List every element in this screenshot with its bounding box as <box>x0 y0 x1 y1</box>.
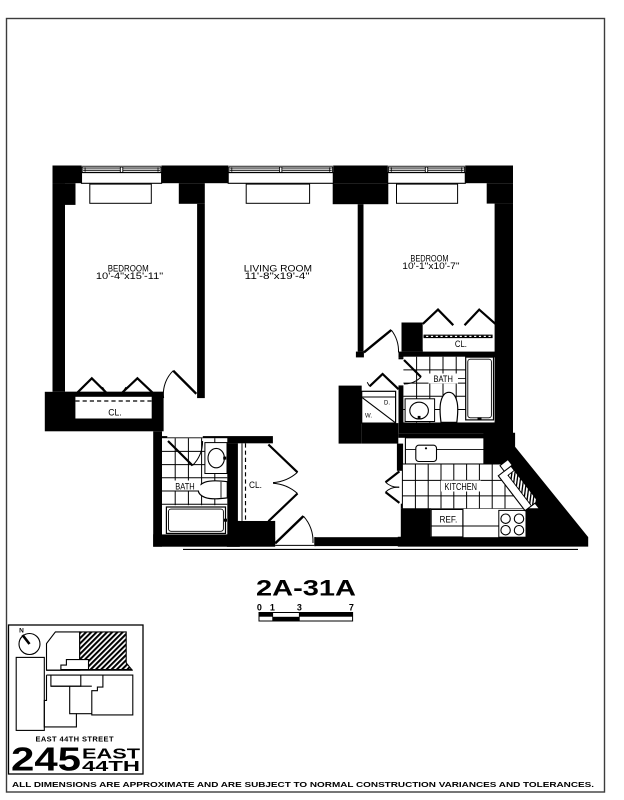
svg-text:7: 7 <box>349 603 354 613</box>
svg-text:CL.: CL. <box>455 339 467 350</box>
svg-text:CL.: CL. <box>108 407 121 418</box>
svg-text:N: N <box>19 628 24 635</box>
svg-text:ALL DIMENSIONS ARE APPROXIMATE: ALL DIMENSIONS ARE APPROXIMATE AND ARE S… <box>12 780 594 789</box>
svg-text:44TH: 44TH <box>82 759 140 775</box>
svg-text:10'-1"x10'-7": 10'-1"x10'-7" <box>402 261 459 271</box>
svg-text:10'-4"x15'-11": 10'-4"x15'-11" <box>96 271 163 281</box>
svg-text:2A-31A: 2A-31A <box>256 576 356 601</box>
svg-text:W.: W. <box>365 414 372 420</box>
svg-text:D.: D. <box>384 401 390 407</box>
svg-text:BATH: BATH <box>175 481 194 491</box>
svg-text:CL.: CL. <box>249 480 262 491</box>
svg-text:11'-8"x19'-4": 11'-8"x19'-4" <box>245 271 310 281</box>
svg-text:BATH: BATH <box>434 374 453 384</box>
svg-text:245: 245 <box>11 741 81 778</box>
svg-text:REF.: REF. <box>440 515 458 525</box>
svg-text:0: 0 <box>257 603 262 613</box>
svg-text:1: 1 <box>270 603 275 613</box>
svg-text:KITCHEN: KITCHEN <box>445 482 478 493</box>
svg-text:3: 3 <box>297 603 302 613</box>
